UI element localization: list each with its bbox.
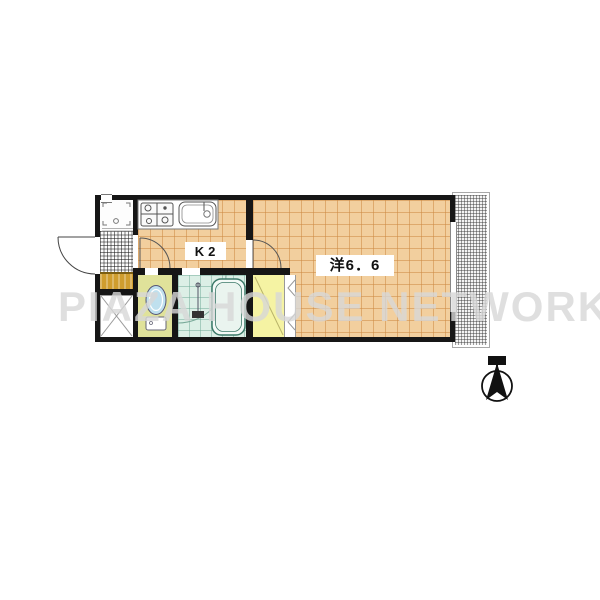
kitchen-counter — [138, 200, 218, 229]
main-room-label: 洋6．6 — [316, 255, 394, 276]
entrance-door-swing — [58, 237, 95, 274]
closet-diagonal-mark — [255, 277, 283, 335]
folding-door-chevrons — [288, 280, 295, 330]
stove-icon — [141, 203, 173, 226]
kitchen-door-swing — [140, 238, 170, 268]
bathtub-icon — [212, 279, 245, 335]
compass-north-icon — [482, 356, 512, 401]
sink-icon — [179, 202, 216, 226]
closet-x-mark — [101, 296, 132, 336]
main-room-door-swing — [253, 240, 281, 268]
floorplan-canvas: K2 洋6．6 PIAZA HOUSE NETWORK — [0, 0, 600, 600]
plan-symbols — [0, 0, 600, 600]
toilet-icon — [146, 286, 166, 331]
kitchen-label: K2 — [185, 242, 226, 260]
bath-faucet-icon — [192, 283, 204, 318]
washer-pan-marks — [102, 203, 133, 231]
